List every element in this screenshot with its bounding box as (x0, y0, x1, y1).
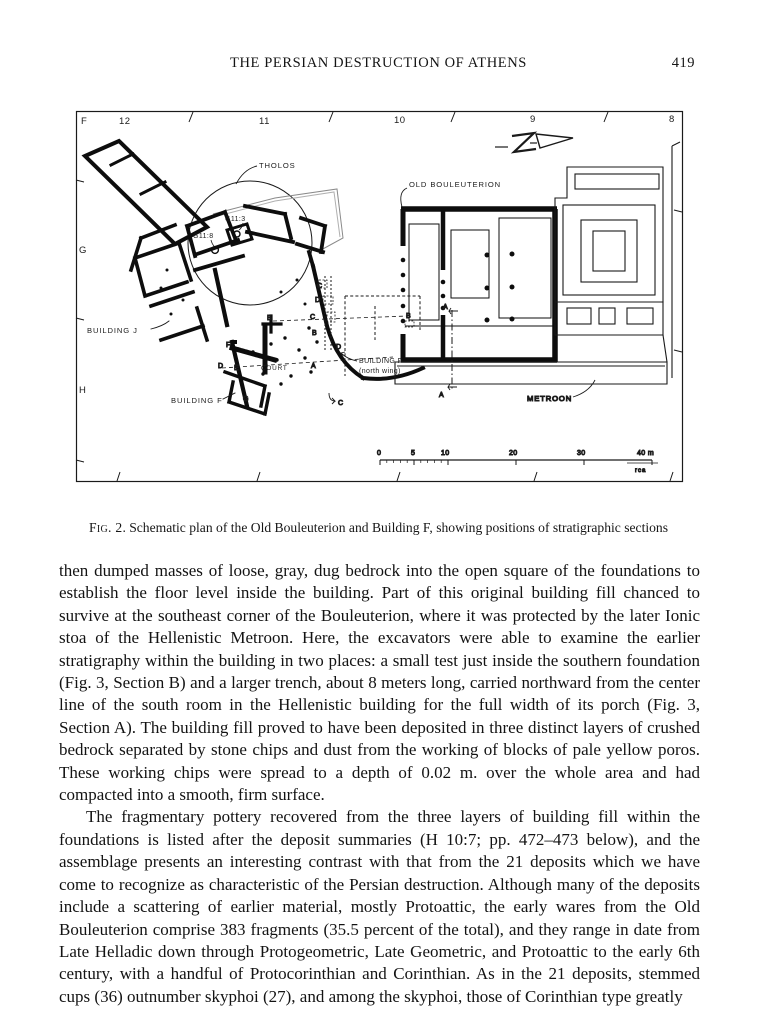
scale-0: 0 (377, 450, 381, 457)
tholos-label: THOLOS (259, 161, 296, 170)
well-g11-8-label: G11:8 (193, 233, 214, 240)
grid-col-12: 12 (119, 116, 131, 127)
grid-row-g: G (79, 245, 87, 256)
draftsman-initials: rca (635, 468, 646, 474)
section-letter: G (243, 396, 249, 403)
scale-10: 10 (441, 450, 450, 457)
section-markers: C D C B D B D E A G C A A B F (218, 276, 458, 407)
room-letter: F (226, 342, 231, 349)
building-f-label: BUILDING F (171, 396, 223, 405)
grid-row-h: H (79, 385, 86, 396)
page: THE PERSIAN DESTRUCTION OF ATHENS 419 12… (0, 0, 757, 1024)
north-arrow-icon (495, 133, 573, 152)
section-letter: A (439, 392, 444, 399)
metroon-label: METROON (527, 394, 572, 403)
well-g11-3-label: G11:3 (225, 216, 246, 223)
scale-20: 20 (509, 450, 518, 457)
figure-caption-text: Schematic plan of the Old Bouleuterion a… (129, 520, 668, 535)
running-title: THE PERSIAN DESTRUCTION OF ATHENS (0, 55, 757, 72)
section-letter: A (443, 304, 448, 311)
section-letter: B (406, 313, 411, 320)
grid-col-9: 9 (530, 114, 536, 125)
scale-30: 30 (577, 450, 586, 457)
scale-bar: 0 5 10 20 30 40 m rca (377, 450, 658, 474)
figure-caption-label: Fig. 2. (89, 520, 126, 535)
building-j-label: BUILDING J (87, 326, 138, 335)
section-letter: D (218, 363, 223, 370)
paragraph-1: then dumped masses of loose, gray, dug b… (59, 560, 700, 806)
scale-40m: 40 m (637, 450, 654, 457)
section-letter: B (267, 315, 272, 322)
figure-2-plan: 12 11 10 9 8 F G H THOLOS (75, 110, 684, 483)
section-letter: D (336, 344, 341, 351)
section-letter: C (310, 314, 315, 321)
page-number: 419 (672, 55, 695, 72)
north-wing-line1: BUILDING F (359, 358, 402, 365)
building-f-north-wing-label: BUILDING F (north wing) (359, 358, 402, 375)
scale-5: 5 (411, 450, 415, 457)
old-bouleuterion: OLD BOULEUTERION (401, 180, 557, 362)
body-text: then dumped masses of loose, gray, dug b… (59, 560, 700, 1008)
building-j: BUILDING J (85, 141, 207, 340)
old-bouleuterion-label: OLD BOULEUTERION (409, 180, 501, 189)
section-letter: B (312, 330, 317, 337)
grid-labels: 12 11 10 9 8 F G H (79, 114, 675, 396)
figure-caption: Fig. 2.Schematic plan of the Old Bouleut… (40, 520, 717, 536)
section-letter: A (311, 363, 316, 370)
grid-col-8: 8 (669, 114, 675, 125)
north-wing-line2: (north wing) (359, 368, 401, 375)
paragraph-2: The fragmentary pottery recovered from t… (59, 806, 700, 1008)
section-letter: E (234, 365, 239, 372)
grid-col-11: 11 (259, 116, 270, 127)
grid-row-f: F (81, 116, 87, 127)
court-label: COURT (261, 365, 288, 372)
section-letter: C (338, 400, 343, 407)
section-letter: D (315, 297, 320, 304)
grid-col-10: 10 (394, 115, 406, 126)
section-letter: C (317, 283, 322, 290)
column-bases (401, 252, 515, 324)
